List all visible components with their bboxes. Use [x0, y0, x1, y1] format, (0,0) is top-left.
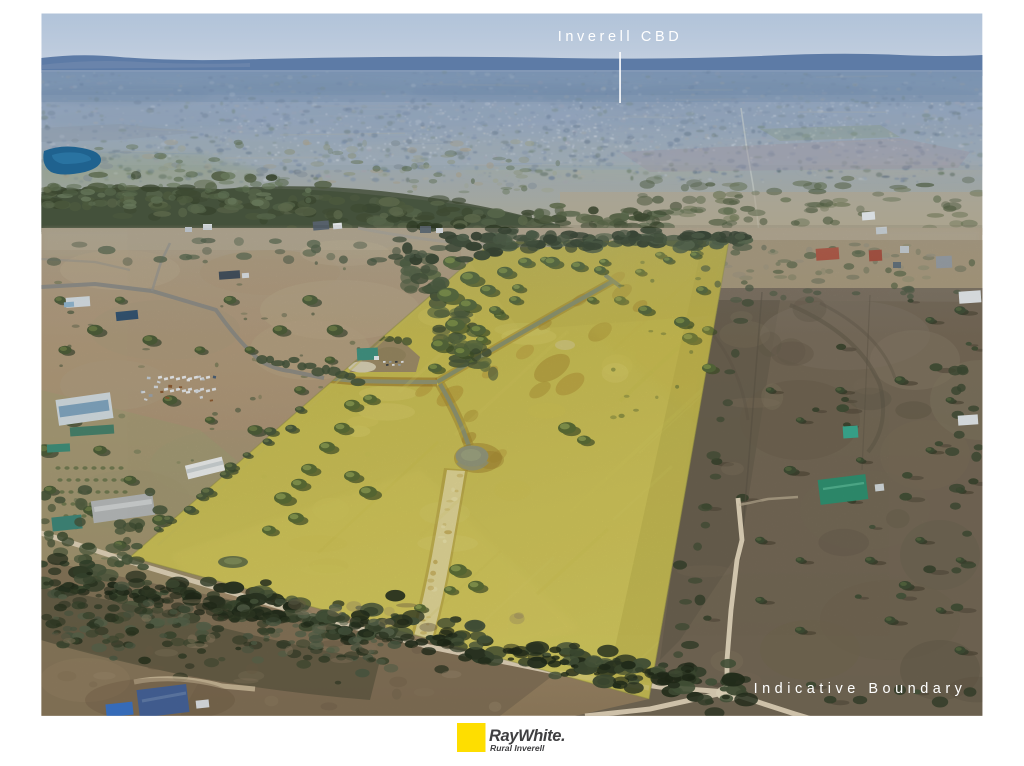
svg-text:Indicative Boundary: Indicative Boundary [754, 681, 967, 697]
svg-text:Rural Inverell: Rural Inverell [490, 743, 545, 753]
svg-text:Inverell CBD: Inverell CBD [558, 29, 683, 45]
